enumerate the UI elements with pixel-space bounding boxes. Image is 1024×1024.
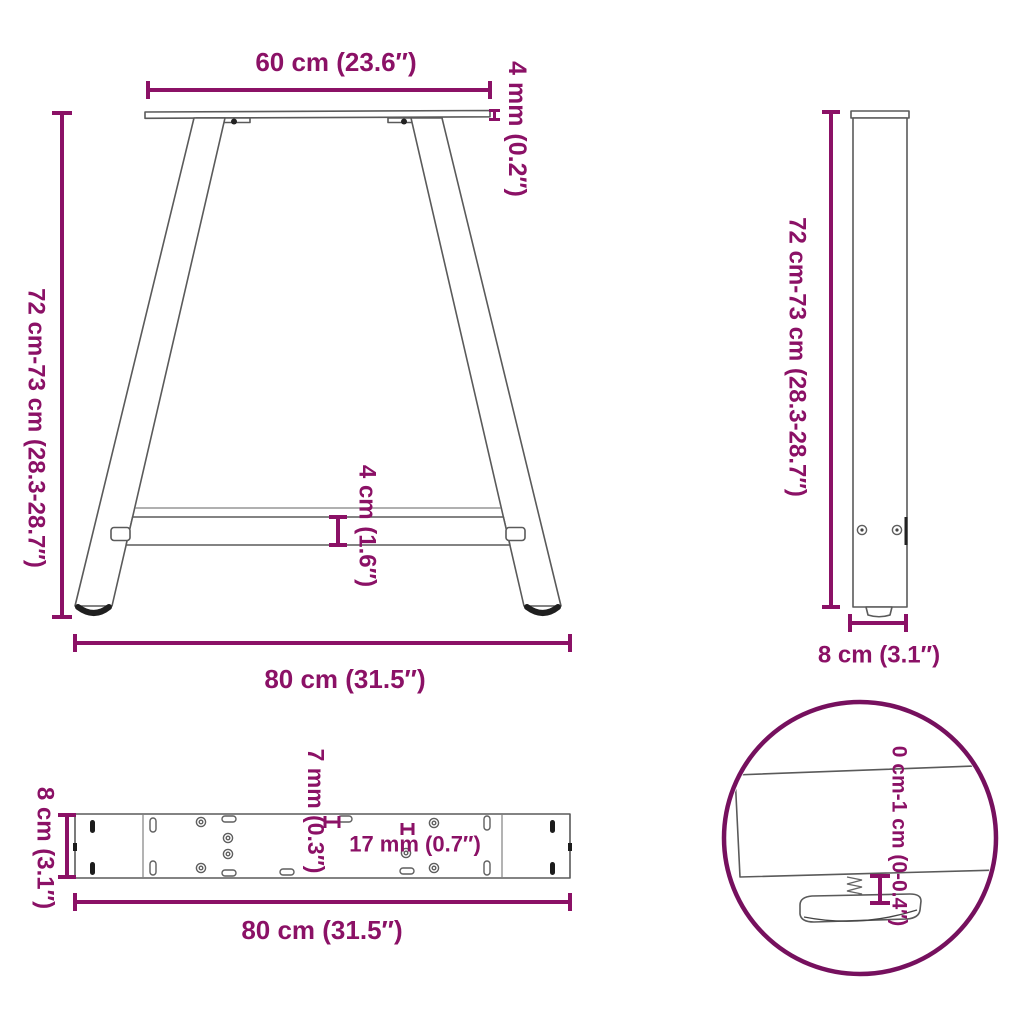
front-base-width-label: 80 cm (31.5″)	[264, 664, 425, 694]
adjustment-range-label: 0 cm-1 cm (0-0.4″)	[888, 746, 911, 926]
detail-leg-bottom	[735, 765, 1000, 877]
slot-length-label: 17 mm (0.7″)	[349, 832, 481, 857]
side-screw-left-dot	[860, 528, 863, 531]
front-plate-thickness-label: 4 mm (0.2″)	[503, 61, 531, 197]
side-foot	[866, 607, 892, 617]
front-view-drawing	[75, 111, 561, 614]
top-view-width-label: 8 cm (3.1″)	[32, 787, 59, 909]
front-left-screw	[231, 119, 237, 125]
side-depth-label: 8 cm (3.1″)	[818, 642, 940, 669]
crossbar	[126, 517, 510, 545]
front-right-foot	[527, 607, 558, 613]
detail-view-drawing	[724, 702, 1000, 974]
side-height-label: 72 cm-73 cm (28.3-28.7″)	[784, 217, 811, 497]
crossbar-height-label: 4 cm (1.6″)	[354, 465, 381, 587]
crossbar-right-hook	[506, 528, 525, 541]
top-view-length-label: 80 cm (31.5″)	[241, 915, 402, 945]
front-top-width-label: 60 cm (23.6″)	[255, 47, 416, 77]
diagram-canvas: 60 cm (23.6″) 4 mm (0.2″) 72 cm-73 cm (2…	[0, 0, 1024, 1024]
hole-diameter-label: 7 mm (0.3″)	[303, 749, 329, 874]
side-view-drawing	[851, 111, 909, 617]
front-left-foot	[78, 607, 109, 613]
crossbar-left-hook	[111, 528, 130, 541]
front-top-plate	[145, 111, 490, 119]
front-height-label: 72 cm-73 cm (28.3-28.7″)	[23, 288, 50, 568]
dimension-diagram: 60 cm (23.6″) 4 mm (0.2″) 72 cm-73 cm (2…	[0, 0, 1024, 1024]
side-top-cap	[851, 111, 909, 118]
front-right-screw	[401, 119, 407, 125]
side-screw-right-dot	[895, 528, 898, 531]
